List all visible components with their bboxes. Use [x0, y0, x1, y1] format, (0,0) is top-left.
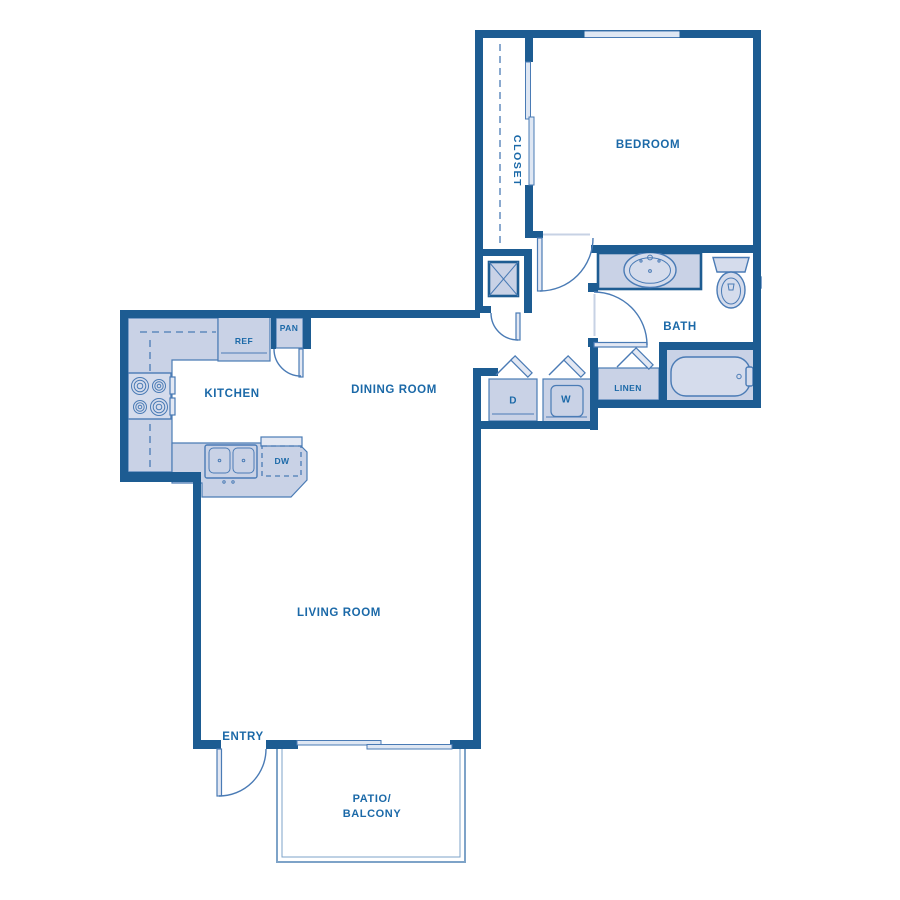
appliance-label-pan: PAN [280, 323, 299, 333]
bath-door [594, 292, 647, 347]
stove [128, 373, 175, 419]
pantry-door [274, 349, 303, 377]
utility-closet-box [489, 262, 518, 296]
entry-door [217, 749, 266, 796]
appliance-label-ref: REF [235, 336, 253, 346]
utility-door [491, 313, 520, 340]
appliance-label-dryer: D [509, 396, 517, 407]
toilet [713, 258, 749, 309]
dryer-bifold [496, 356, 532, 377]
room-label-linen: LINEN [614, 383, 642, 393]
room-label-closet: CLOSET [511, 135, 523, 187]
room-label-entry: ENTRY [222, 731, 264, 743]
patio-sliding-door [297, 741, 452, 750]
appliance-label-washer: W [561, 395, 571, 406]
room-label-bath: BATH [663, 321, 697, 333]
room-label-living-room: LIVING ROOM [297, 607, 381, 619]
room-label-balcony: BALCONY [343, 808, 402, 820]
room-label-dining-room: DINING ROOM [351, 384, 437, 396]
bedroom-door [538, 238, 594, 291]
room-label-patio: PATIO/ [353, 793, 392, 805]
appliance-label-dw: DW [275, 456, 290, 466]
room-label-bedroom: BEDROOM [616, 139, 680, 151]
bedroom-window [581, 30, 683, 38]
room-label-kitchen: KITCHEN [204, 388, 259, 400]
vanity-sink [598, 253, 701, 290]
floor-plan: BEDROOM CLOSET BATH LINEN KITCHEN DINING… [0, 0, 900, 900]
linen-bifold [617, 348, 653, 369]
floor-plan-drawing [0, 0, 900, 900]
bathtub [671, 357, 753, 396]
washer-bifold [549, 356, 585, 377]
patio-outline [277, 749, 465, 862]
